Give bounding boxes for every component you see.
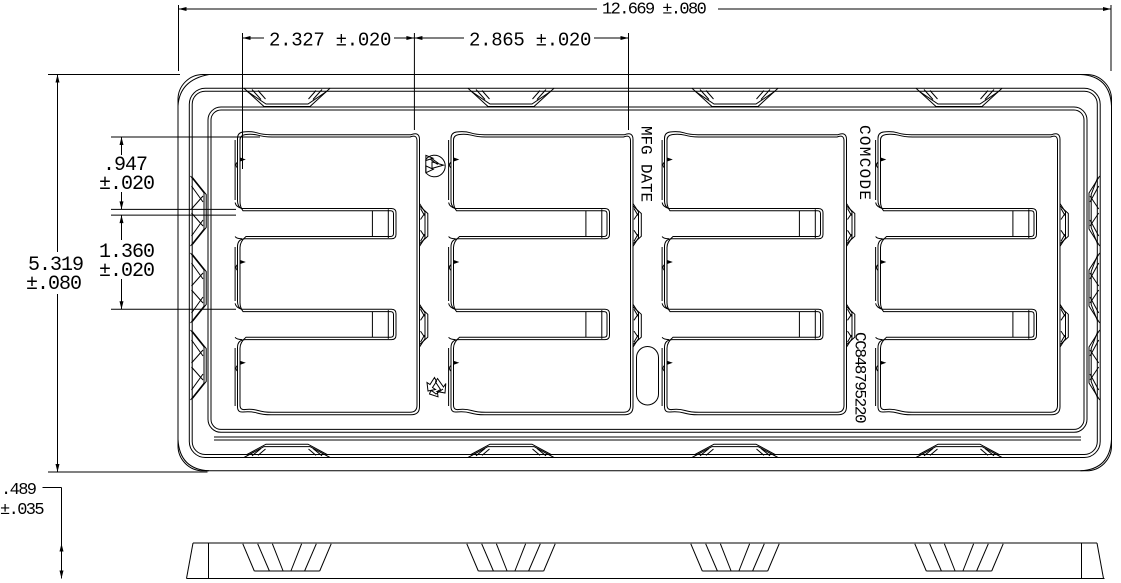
svg-text:±.035: ±.035 — [0, 501, 44, 520]
svg-text:.489: .489 — [1, 481, 37, 500]
svg-text:±.080: ±.080 — [26, 273, 81, 296]
svg-text:2.865 ±.020: 2.865 ±.020 — [469, 30, 591, 52]
svg-text:MFG DATE: MFG DATE — [637, 126, 655, 202]
svg-text:±.020: ±.020 — [99, 260, 154, 283]
svg-text:COMCODE: COMCODE — [855, 125, 873, 201]
svg-text:CC848795220: CC848795220 — [851, 332, 869, 423]
svg-text:±.020: ±.020 — [99, 173, 154, 196]
svg-text:12.669 ±.080: 12.669 ±.080 — [602, 1, 707, 20]
svg-text:2.327 ±.020: 2.327 ±.020 — [269, 30, 391, 52]
